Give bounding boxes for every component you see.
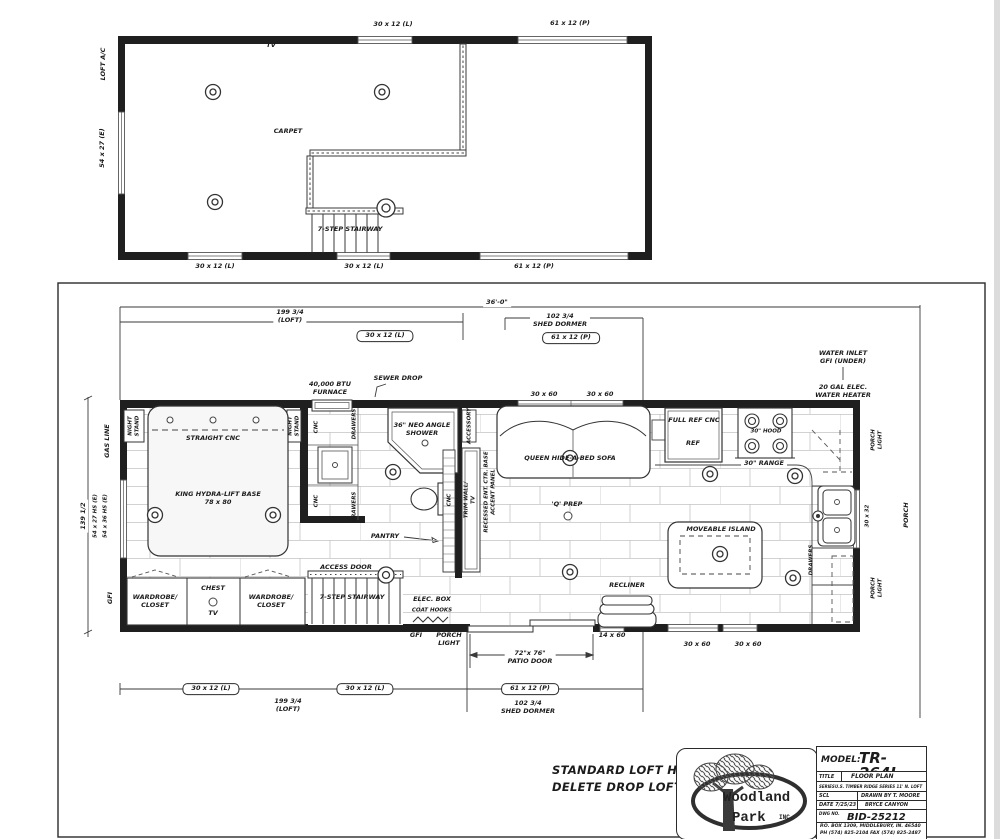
chest-label: CHEST (201, 585, 225, 593)
sofa-label: QUEEN HIDE-A-BED SOFA (524, 455, 615, 463)
island-label: MOVEABLE ISLAND (686, 526, 755, 534)
recliner-label: RECLINER (609, 582, 645, 590)
dwg-value: BID-25212 (847, 813, 906, 823)
wardrobe-label: WARDROBE/ CLOSET (249, 594, 294, 610)
accessory-label: ACCESSORY (467, 408, 474, 444)
wardrobe-label: WARDROBE/ CLOSET (133, 594, 178, 610)
model-label: MODEL: (821, 756, 861, 765)
dwg-label: DWG NO. (819, 812, 840, 816)
pantry-label: PANTRY (371, 533, 399, 541)
window-dim-box: 61 x 12 (P) (542, 332, 600, 344)
loft-window-dim: 30 x 12 (L) (373, 21, 412, 29)
gfi-label: GFI (107, 592, 115, 604)
scale-label: SCL (819, 794, 829, 799)
title-row: TITLE FLOOR PLAN (817, 772, 926, 782)
drawers-label: DRAWERS (352, 492, 359, 523)
ref-label: REF (686, 440, 700, 448)
porch-light-label: PORCH LIGHT (436, 632, 462, 648)
porch-light-label: PORCH LIGHT (870, 429, 883, 451)
drawn-by: DRAWN BY T. MOORE (861, 794, 920, 799)
dormer-dim: 102 3/4 SHED DORMER (498, 700, 558, 716)
night-stand-label: NIGHT STAND (127, 416, 140, 437)
shower-label: 36" NEO ANGLE SHOWER (394, 422, 451, 438)
dormer-dim: 102 3/4 SHED DORMER (530, 313, 590, 329)
dwg-row: DWG NO. BID-25212 (817, 810, 926, 823)
furnace-label: 40,000 BTU FURNACE (309, 381, 351, 397)
stairway-label: 7-STEP STAIRWAY (320, 594, 385, 602)
prep-label: 'Q' PREP (552, 501, 583, 509)
drawers-label: DRAWERS (809, 545, 816, 576)
title-block-table: MODEL: TR-264L TITLE FLOOR PLAN SERIES U… (816, 746, 927, 839)
loft-window-dim: 61 x 12 (P) (550, 20, 590, 28)
date-row: DATE 7/25/23 BRYCE CANYON (817, 801, 926, 810)
logo-word-1: Woodland (723, 791, 790, 805)
furnace (312, 400, 352, 411)
tv-label: TV (208, 610, 217, 618)
loft-window-dim: 61 x 12 (P) (514, 263, 554, 271)
loft-window-dim: 30 x 12 (L) (344, 263, 383, 271)
window-dim: 30 x 60 (531, 391, 558, 399)
porch-light-label: PORCH LIGHT (870, 577, 883, 599)
company-logo: Woodland Park INC. (676, 748, 818, 839)
cnc-label: CNC (314, 495, 321, 508)
company-address: P.O. BOX 1309, MIDDLEBURY, IN. 46540 (820, 825, 921, 830)
window-dim: 30 x 32 (865, 505, 872, 528)
prep-outlet (564, 512, 572, 520)
title-label: TITLE (819, 775, 834, 780)
bed-label: KING HYDRA-LIFT BASE 78 x 80 (175, 491, 261, 507)
model-row: MODEL: TR-264L (817, 747, 926, 772)
title-block: Woodland Park INC. MODEL: TR-264L TITLE … (676, 746, 925, 838)
window-dim: 30 x 60 (735, 641, 762, 649)
cnc-label: CNC (447, 494, 454, 507)
series-value: U.S. TIMBER RIDGE SERIES 11' N. LOFT (835, 785, 922, 789)
straight-cnc-label: STRAIGHT CNC (186, 435, 240, 443)
address-row: P.O. BOX 1309, MIDDLEBURY, IN. 46540 PH … (817, 823, 926, 839)
company-phone: PH (574) 825-2104 FAX (574) 825-2487 (820, 832, 921, 837)
loft-length-dim: 199 3/4 (LOFT) (271, 698, 304, 714)
model-value: TR-264L (859, 751, 926, 772)
water-heater-label: 20 GAL ELEC. WATER HEATER (815, 384, 871, 400)
overall-dim: 36'-0" (483, 299, 511, 307)
window-dim: 54 x 27 HS (E) (93, 494, 100, 538)
recliner (598, 596, 656, 627)
recessed-ent-label: RECESSED ENT. CTR. BASE ACCENT PANEL (483, 451, 496, 532)
loft-tv-label: TV (266, 42, 275, 50)
loft-length-dim: 199 3/4 (LOFT) (273, 309, 306, 325)
coat-hooks-label: COAT HOOKS (412, 608, 452, 615)
gfi-label: GFI (410, 632, 422, 640)
height-dim: 139 1/2 (80, 499, 88, 532)
window-dim-box: 30 x 12 (L) (336, 683, 393, 695)
cnc-label: CNC (314, 421, 321, 434)
gas-line-label: GAS LINE (104, 424, 112, 458)
logo-word-2: Park (732, 811, 766, 825)
scale-row: SCL DRAWN BY T. MOORE (817, 792, 926, 801)
patio-door-dim: 72"x 76" PATIO DOOR (505, 650, 556, 666)
hood-label: 30" HOOD (748, 429, 785, 436)
window-dim-box: 30 x 12 (L) (182, 683, 239, 695)
porch-label: PORCH (903, 502, 911, 528)
range-label: 30" RANGE (741, 460, 787, 468)
sewer-drop-label: SEWER DROP (374, 375, 423, 383)
series-label: SERIES (819, 785, 835, 789)
window-dim: 54 x 36 HS (E) (103, 494, 110, 538)
logo-inc: INC. (779, 815, 793, 821)
loft-ac-label: LOFT A/C (100, 48, 108, 81)
window-dim: 30 x 60 (587, 391, 614, 399)
window-dim: 30 x 60 (684, 641, 711, 649)
loft-window-dim: 30 x 12 (L) (195, 263, 234, 271)
series-row: SERIES U.S. TIMBER RIDGE SERIES 11' N. L… (817, 782, 926, 792)
trim-wall-label: TRIM WALL/ TV (463, 482, 476, 519)
carpet-label: CARPET (274, 128, 302, 136)
window-dim-box: 61 x 12 (P) (501, 683, 559, 695)
ref-cnc-label: FULL REF CNC (668, 417, 719, 425)
window-dim-box: 30 x 12 (L) (356, 330, 413, 342)
bedroom-furniture (124, 406, 301, 556)
elec-box-label: ELEC. BOX (413, 596, 451, 604)
model-name: BRYCE CANYON (865, 803, 908, 808)
date-value: DATE 7/25/23 (819, 803, 856, 808)
access-door-label: ACCESS DOOR (320, 564, 372, 572)
water-inlet-label: WATER INLET GFI (UNDER) (819, 350, 867, 366)
loft-plan (118, 36, 652, 260)
title-value: FLOOR PLAN (851, 774, 894, 780)
night-stand-label: NIGHT STAND (287, 416, 300, 437)
drawers-label: DRAWERS (352, 409, 359, 440)
sofa (497, 406, 672, 478)
loft-stairway-label: 7-STEP STAIRWAY (318, 226, 383, 234)
loft-window-dim: 54 x 27 (E) (99, 128, 107, 167)
drawing-sheet: 30 x 12 (L) 61 x 12 (P) LOFT A/C TV 54 x… (0, 0, 1000, 839)
scan-edge-shadow (994, 0, 1000, 839)
window-dim: 14 x 60 (599, 632, 626, 640)
